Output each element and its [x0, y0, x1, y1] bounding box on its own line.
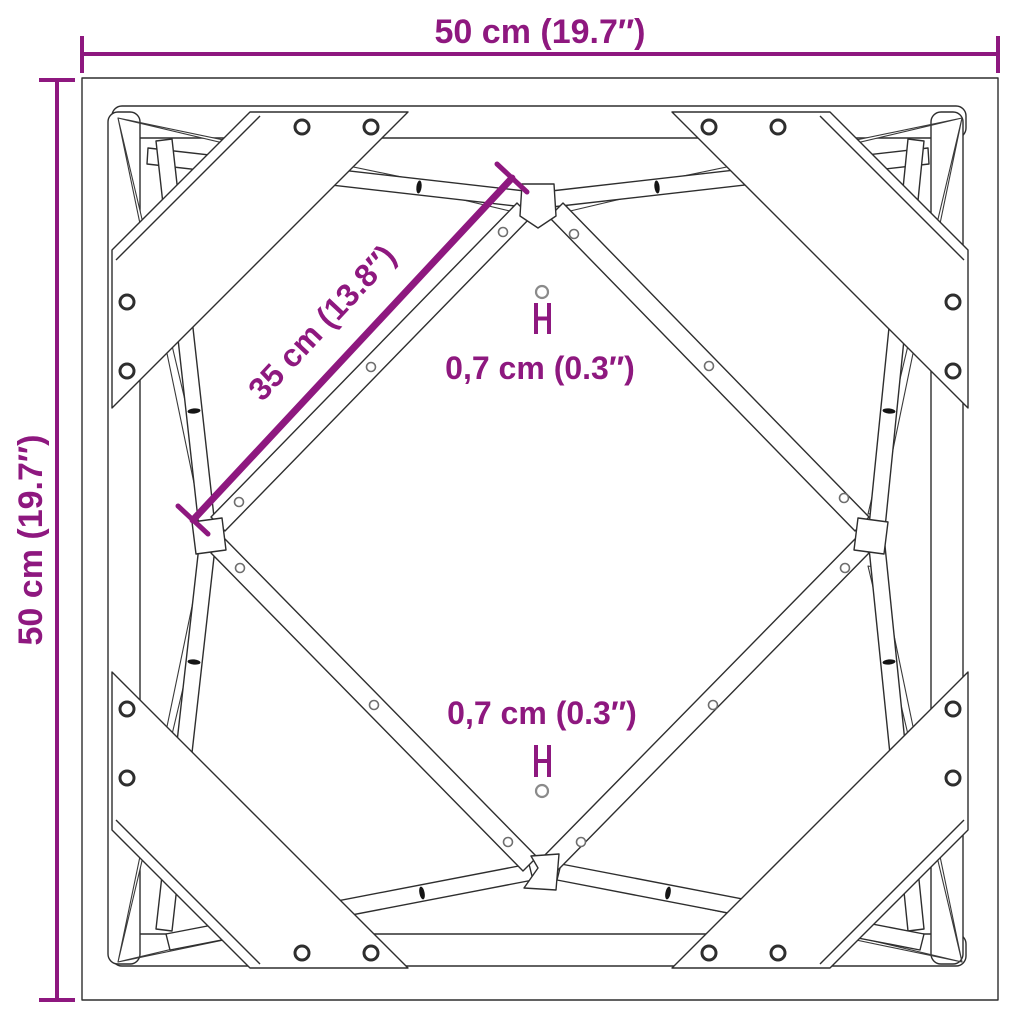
- product-dimension-drawing: 50 cm (19.7″) 50 cm (19.7″) 35 cm (13.8″…: [0, 0, 1024, 1024]
- height-dimension: 50 cm (19.7″): [12, 80, 75, 1000]
- width-dimension-label: 50 cm (19.7″): [435, 13, 646, 51]
- hole-dimension-label-top: 0,7 cm (0.3″): [445, 350, 635, 386]
- callout-hole: [536, 286, 548, 298]
- width-dimension: 50 cm (19.7″): [82, 13, 998, 73]
- height-dimension-label: 50 cm (19.7″): [12, 435, 50, 646]
- assembly-diagram: 50 cm (19.7″) 50 cm (19.7″) 35 cm (13.8″…: [0, 0, 1024, 1024]
- callout-hole: [536, 785, 548, 797]
- hole-dimension-label-bottom: 0,7 cm (0.3″): [447, 695, 637, 731]
